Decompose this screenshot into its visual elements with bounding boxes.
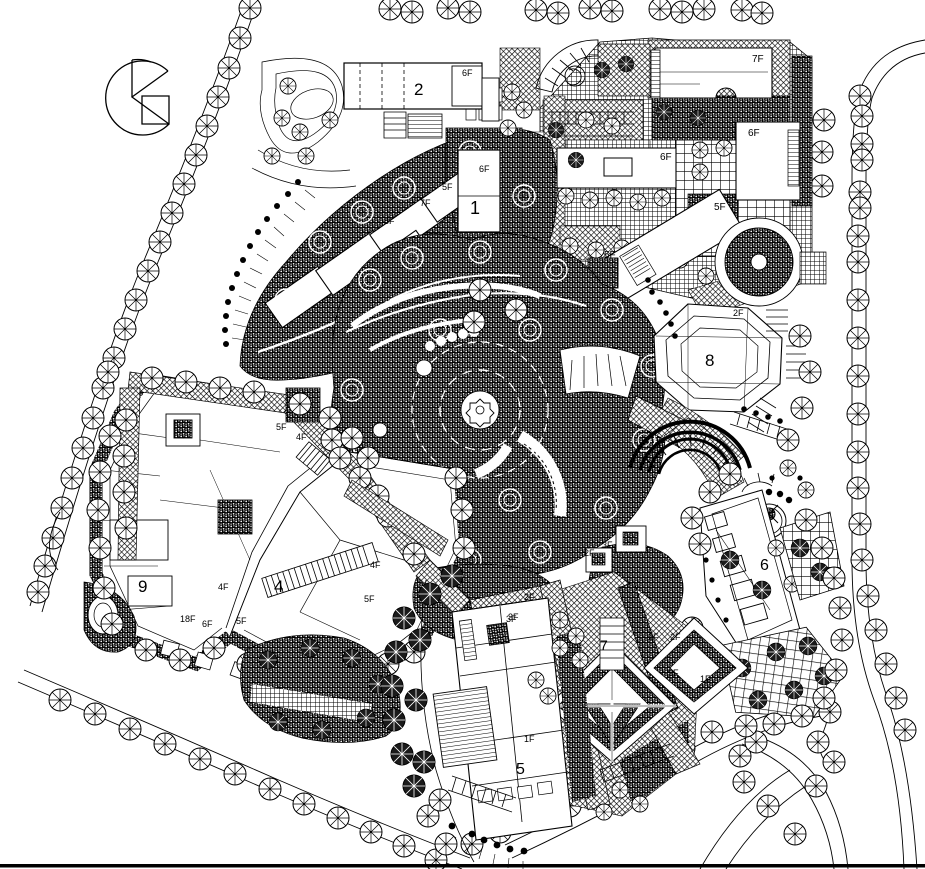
svg-text:5F: 5F (442, 182, 453, 192)
svg-text:2F: 2F (648, 632, 659, 642)
svg-text:2F: 2F (670, 632, 681, 642)
svg-text:4F: 4F (296, 432, 307, 442)
svg-text:6F: 6F (479, 164, 490, 174)
svg-text:2F: 2F (733, 308, 744, 318)
svg-text:7: 7 (600, 637, 608, 653)
svg-text:5F: 5F (364, 594, 375, 604)
svg-text:6F: 6F (660, 152, 672, 163)
svg-text:5F: 5F (236, 616, 247, 626)
svg-text:1: 1 (470, 198, 480, 218)
svg-text:7F: 7F (752, 54, 764, 65)
svg-text:2F: 2F (584, 548, 595, 558)
svg-text:2: 2 (414, 80, 423, 99)
svg-text:8F: 8F (384, 216, 395, 226)
svg-text:5: 5 (516, 761, 525, 778)
svg-text:18F: 18F (180, 614, 196, 624)
svg-text:5F: 5F (276, 422, 287, 432)
svg-text:4F: 4F (370, 560, 381, 570)
svg-text:6F: 6F (748, 128, 760, 139)
svg-text:6F: 6F (202, 619, 213, 629)
svg-text:5F: 5F (714, 202, 726, 213)
svg-text:1F: 1F (524, 734, 535, 744)
svg-text:2F: 2F (524, 592, 535, 602)
svg-text:4F: 4F (218, 582, 229, 592)
svg-text:1F: 1F (700, 674, 711, 684)
svg-text:3F: 3F (506, 614, 517, 624)
svg-text:3F: 3F (602, 540, 613, 550)
svg-text:3F: 3F (668, 668, 679, 678)
svg-text:8: 8 (705, 351, 714, 370)
svg-text:9: 9 (138, 577, 147, 596)
svg-text:4: 4 (274, 577, 283, 596)
svg-text:7F: 7F (420, 198, 431, 208)
svg-text:6: 6 (760, 557, 769, 574)
svg-text:6F: 6F (462, 68, 473, 78)
